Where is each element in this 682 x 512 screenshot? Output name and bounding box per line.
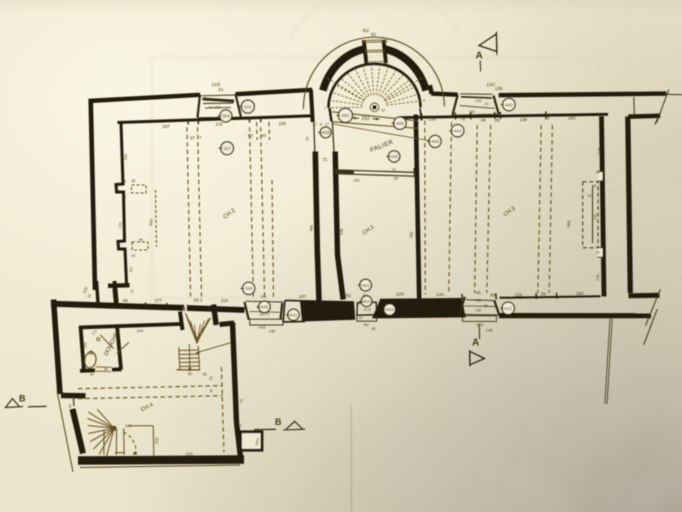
svg-text:441: 441: [244, 104, 252, 109]
svg-text:21: 21: [122, 194, 126, 198]
svg-text:105: 105: [495, 86, 503, 91]
svg-text:199: 199: [593, 214, 598, 220]
svg-text:40: 40: [261, 133, 267, 138]
svg-text:154: 154: [117, 350, 121, 356]
svg-text:452: 452: [362, 283, 370, 288]
svg-text:53: 53: [248, 133, 254, 138]
svg-text:115: 115: [475, 99, 481, 103]
svg-text:237: 237: [185, 452, 193, 457]
svg-text:82: 82: [394, 176, 399, 181]
svg-text:204: 204: [137, 328, 144, 333]
svg-text:138: 138: [520, 117, 528, 122]
svg-text:30: 30: [596, 171, 600, 175]
svg-text:160: 160: [125, 423, 132, 428]
svg-text:97: 97: [382, 109, 386, 113]
svg-text:102: 102: [154, 436, 160, 444]
svg-text:12: 12: [204, 97, 209, 102]
svg-text:B: B: [275, 417, 282, 427]
svg-text:102/: 102/: [476, 322, 485, 327]
svg-text:486: 486: [309, 225, 314, 232]
svg-text:115: 115: [475, 309, 481, 313]
svg-text:A: A: [476, 51, 483, 62]
svg-text:337: 337: [223, 146, 231, 151]
svg-text:438: 438: [338, 228, 344, 236]
svg-text:50: 50: [490, 292, 496, 297]
svg-text:81/: 81/: [363, 28, 370, 33]
svg-text:73: 73: [130, 289, 134, 293]
svg-text:70 /0: 70 /0: [363, 308, 371, 312]
svg-text:92 1: 92 1: [194, 298, 203, 303]
svg-text:46: 46: [476, 290, 482, 295]
svg-text:90: 90: [484, 304, 488, 308]
svg-text:448: 448: [396, 121, 404, 126]
svg-text:98: 98: [139, 238, 143, 242]
svg-text:103/: 103/: [258, 325, 266, 329]
svg-text:136: 136: [428, 117, 436, 122]
svg-text:148: 148: [486, 328, 493, 333]
svg-text:463: 463: [363, 299, 371, 304]
svg-text:458: 458: [322, 130, 330, 135]
svg-text:61/: 61/: [364, 323, 369, 327]
svg-text:160: 160: [469, 110, 475, 114]
svg-text:12: 12: [485, 102, 489, 106]
svg-text:190: 190: [576, 291, 584, 296]
svg-text:23: 23: [413, 175, 417, 179]
svg-text:49: 49: [123, 298, 129, 303]
svg-text:37: 37: [190, 135, 196, 140]
svg-text:71: 71: [322, 157, 327, 162]
svg-text:52: 52: [90, 373, 94, 377]
svg-text:110: 110: [221, 298, 229, 303]
svg-text:440: 440: [390, 154, 398, 159]
svg-text:36: 36: [494, 117, 500, 122]
svg-text:78: 78: [460, 117, 466, 122]
svg-text:180: 180: [568, 116, 576, 121]
svg-text:6: 6: [320, 123, 322, 127]
svg-text:28: 28: [131, 179, 135, 183]
svg-text:A: A: [472, 338, 479, 349]
svg-text:13: 13: [183, 307, 187, 311]
svg-text:444: 444: [454, 128, 462, 133]
svg-text:73: 73: [335, 162, 339, 167]
svg-text:28: 28: [255, 428, 259, 432]
svg-text:1195: 1195: [597, 147, 602, 155]
svg-text:36: 36: [122, 179, 126, 183]
svg-text:67: 67: [238, 424, 242, 428]
svg-text:443: 443: [386, 307, 394, 312]
svg-text:30: 30: [541, 292, 547, 297]
svg-text:52: 52: [371, 32, 377, 37]
svg-text:176: 176: [596, 274, 601, 281]
svg-text:27: 27: [325, 123, 329, 127]
svg-text:257: 257: [162, 124, 170, 129]
svg-text:132: 132: [216, 121, 224, 126]
svg-text:120: 120: [396, 292, 404, 297]
svg-text:41: 41: [81, 394, 85, 398]
svg-text:B: B: [19, 394, 26, 404]
svg-text:30: 30: [62, 395, 66, 399]
svg-text:150: 150: [83, 342, 87, 348]
svg-text:70: 70: [587, 193, 592, 198]
svg-text:91: 91: [363, 294, 367, 298]
svg-text:31: 31: [343, 293, 347, 297]
svg-text:135: 135: [269, 330, 275, 334]
svg-text:441: 441: [290, 313, 298, 318]
svg-text:46: 46: [481, 117, 487, 122]
svg-text:123/: 123/: [211, 82, 221, 87]
svg-text:230: 230: [279, 121, 287, 126]
svg-text:112 72: 112 72: [259, 313, 269, 317]
svg-text:440: 440: [505, 102, 513, 107]
svg-text:55: 55: [209, 376, 213, 380]
svg-text:12: 12: [359, 316, 363, 320]
svg-text:80: 80: [104, 368, 108, 372]
svg-text:125: 125: [515, 292, 523, 297]
svg-text:151: 151: [353, 178, 360, 183]
svg-text:111: 111: [129, 267, 133, 273]
svg-text:252: 252: [361, 116, 370, 122]
svg-text:177: 177: [154, 298, 162, 303]
svg-text:62: 62: [188, 372, 192, 376]
svg-text:10-105: 10-105: [208, 106, 220, 110]
svg-text:29: 29: [131, 254, 135, 258]
svg-text:30: 30: [544, 116, 550, 121]
svg-text:422: 422: [504, 306, 512, 311]
svg-text:51: 51: [68, 404, 72, 408]
svg-text:144: 144: [436, 292, 444, 297]
svg-text:26: 26: [596, 251, 600, 255]
svg-text:648: 648: [261, 305, 269, 310]
svg-text:35: 35: [209, 389, 213, 393]
svg-text:202: 202: [124, 154, 129, 161]
svg-text:460: 460: [342, 113, 350, 118]
svg-text:80: 80: [372, 327, 376, 331]
svg-text:196: 196: [260, 295, 266, 299]
svg-text:91: 91: [218, 87, 224, 92]
svg-text:430: 430: [408, 231, 414, 239]
svg-text:459: 459: [431, 139, 439, 144]
svg-text:22: 22: [305, 136, 310, 141]
svg-text:51: 51: [239, 399, 243, 403]
svg-text:348: 348: [245, 286, 253, 291]
svg-text:354: 354: [222, 114, 230, 119]
svg-text:136: 136: [475, 298, 481, 302]
svg-text:56: 56: [203, 372, 207, 376]
svg-text:M: M: [356, 303, 359, 307]
svg-text:107: 107: [299, 294, 307, 299]
svg-text:58: 58: [593, 184, 597, 188]
svg-text:172: 172: [118, 222, 123, 228]
svg-text:77: 77: [392, 168, 396, 172]
svg-text:27: 27: [313, 123, 317, 127]
